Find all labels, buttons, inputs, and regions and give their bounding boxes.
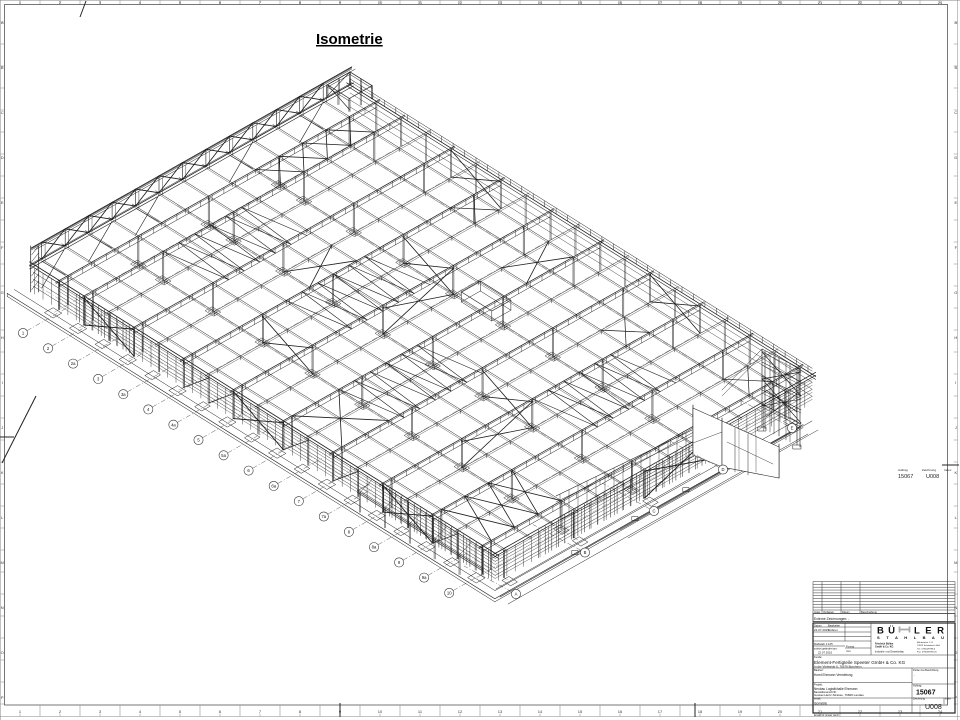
svg-text:18: 18 bbox=[698, 0, 703, 5]
svg-text:Bühlertalstr. 7+9: Bühlertalstr. 7+9 bbox=[917, 641, 934, 644]
svg-text:6a: 6a bbox=[271, 484, 276, 489]
svg-text:A: A bbox=[954, 20, 957, 25]
svg-text:Verfasser: Verfasser bbox=[823, 610, 834, 614]
svg-text:Format: Format bbox=[846, 645, 854, 649]
svg-text:4a: 4a bbox=[171, 422, 176, 427]
svg-text:12: 12 bbox=[458, 0, 463, 5]
svg-text:16: 16 bbox=[618, 0, 623, 5]
svg-text:Horst Ehrmann Vermietung: Horst Ehrmann Vermietung bbox=[814, 673, 853, 677]
svg-text:17: 17 bbox=[658, 709, 663, 714]
svg-text:Externe Zeichnungen: -: Externe Zeichnungen: - bbox=[814, 617, 849, 621]
svg-text:3a: 3a bbox=[121, 392, 126, 397]
svg-text:-: - bbox=[914, 673, 915, 677]
svg-text:14: 14 bbox=[538, 0, 543, 5]
svg-text:I: I bbox=[955, 380, 956, 385]
svg-text:B: B bbox=[1, 65, 4, 70]
svg-text:14: 14 bbox=[538, 709, 543, 714]
svg-text:U008: U008 bbox=[925, 704, 942, 711]
svg-text:15067: 15067 bbox=[898, 474, 913, 480]
svg-text:15067: 15067 bbox=[916, 690, 936, 697]
svg-text:20: 20 bbox=[778, 0, 783, 5]
svg-text:K: K bbox=[1, 470, 4, 475]
svg-text:Isometrie: Isometrie bbox=[316, 31, 383, 48]
svg-text:Index: Index bbox=[944, 468, 952, 472]
svg-text:D: D bbox=[1, 155, 4, 160]
svg-text:22: 22 bbox=[858, 0, 863, 5]
svg-text:U008: U008 bbox=[926, 474, 939, 480]
svg-text:C: C bbox=[652, 509, 655, 514]
svg-text:E: E bbox=[1, 200, 4, 205]
svg-text:20: 20 bbox=[778, 709, 783, 714]
svg-text:Auftrag: Auftrag bbox=[913, 684, 922, 688]
svg-text:S T A H L B A U: S T A H L B A U bbox=[877, 635, 944, 640]
svg-text:H: H bbox=[1, 335, 4, 340]
svg-text:A: A bbox=[515, 592, 518, 597]
svg-text:G: G bbox=[1, 290, 4, 295]
svg-text:Beschreibung: Beschreibung bbox=[861, 610, 877, 614]
svg-text:Kunde:: Kunde: bbox=[814, 655, 823, 659]
svg-text:8a: 8a bbox=[372, 545, 377, 550]
svg-text:18: 18 bbox=[698, 709, 703, 714]
svg-text:5a: 5a bbox=[221, 453, 226, 458]
svg-text:Inhalt:: Inhalt: bbox=[814, 697, 821, 701]
svg-text:Zeichnung: Zeichnung bbox=[922, 468, 936, 472]
svg-text:H: H bbox=[954, 335, 957, 340]
svg-text:J: J bbox=[1, 425, 3, 430]
svg-text:B: B bbox=[584, 550, 587, 555]
svg-text:21: 21 bbox=[818, 0, 823, 5]
svg-text:22.07.2015: 22.07.2015 bbox=[818, 651, 832, 655]
svg-text:13: 13 bbox=[498, 709, 503, 714]
svg-text:17: 17 bbox=[658, 0, 663, 5]
svg-text:Projekt:: Projekt: bbox=[814, 682, 823, 686]
svg-text:I: I bbox=[2, 380, 3, 385]
svg-text:C: C bbox=[954, 110, 957, 115]
svg-text:J: J bbox=[955, 425, 957, 430]
svg-text:Datum: Datum bbox=[814, 623, 822, 627]
svg-text:E: E bbox=[791, 426, 794, 431]
svg-text:10: 10 bbox=[447, 591, 452, 596]
svg-text:D: D bbox=[721, 467, 724, 472]
svg-text:15: 15 bbox=[578, 0, 583, 5]
svg-text:Partien bei Beschriftung: Partien bei Beschriftung bbox=[913, 669, 939, 672]
svg-text:B: B bbox=[954, 65, 957, 70]
svg-text:10: 10 bbox=[378, 0, 383, 5]
svg-text:M: M bbox=[954, 560, 957, 565]
svg-text:P: P bbox=[1, 695, 4, 700]
svg-text:16: 16 bbox=[618, 709, 623, 714]
svg-text:Hübner: Hübner bbox=[828, 628, 838, 632]
svg-text:13: 13 bbox=[498, 0, 503, 5]
svg-text:Isometrie: Isometrie bbox=[814, 702, 827, 706]
svg-text:G: G bbox=[954, 290, 957, 295]
svg-text:GmbH & Co. KG: GmbH & Co. KG bbox=[875, 646, 893, 649]
svg-text:12: 12 bbox=[458, 709, 463, 714]
svg-text:Tel.: 07904/9799-0: Tel.: 07904/9799-0 bbox=[917, 649, 936, 651]
svg-text:15: 15 bbox=[578, 709, 583, 714]
svg-text:2a: 2a bbox=[71, 361, 76, 366]
svg-text:Ersatz für: Ersatz durch:: Ersatz für: Ersatz durch: bbox=[814, 714, 840, 717]
svg-text:Index: Index bbox=[945, 698, 952, 701]
svg-text:Zeichnung: Zeichnung bbox=[913, 697, 926, 701]
svg-text:10: 10 bbox=[378, 709, 383, 714]
svg-text:24: 24 bbox=[938, 0, 943, 5]
svg-text:Maßstab 1:125: Maßstab 1:125 bbox=[814, 642, 833, 646]
svg-text:9a: 9a bbox=[422, 575, 427, 580]
svg-text:Industrie- und Gewerbebau: Industrie- und Gewerbebau bbox=[875, 651, 905, 654]
svg-text:Gustav-Hertz-Strasse, 76829 L: Gustav-Hertz-Strasse, 76829 Landau bbox=[814, 693, 864, 697]
svg-text:Auftrag: Auftrag bbox=[898, 468, 908, 472]
svg-text:M: M bbox=[1, 560, 4, 565]
svg-text:Index: Index bbox=[814, 610, 821, 614]
svg-text:A: A bbox=[1, 20, 4, 25]
svg-text:O: O bbox=[1, 650, 4, 655]
svg-text:Datum: Datum bbox=[842, 610, 850, 614]
svg-text:K: K bbox=[954, 470, 957, 475]
svg-text:23: 23 bbox=[898, 0, 903, 5]
svg-text:74523 Schwäbisch Hall: 74523 Schwäbisch Hall bbox=[917, 645, 940, 647]
svg-text:7a: 7a bbox=[321, 514, 326, 519]
svg-text:19: 19 bbox=[738, 709, 743, 714]
svg-text:D: D bbox=[954, 155, 957, 160]
svg-text:N: N bbox=[1, 605, 4, 610]
svg-text:Fax: 07904/9799-20: Fax: 07904/9799-20 bbox=[917, 651, 937, 653]
svg-text:Bearbeiter: Bearbeiter bbox=[828, 623, 840, 627]
svg-text:E: E bbox=[954, 200, 957, 205]
svg-text:Bauherr:: Bauherr: bbox=[814, 668, 824, 672]
svg-text:19: 19 bbox=[738, 0, 743, 5]
svg-text:C: C bbox=[1, 110, 4, 115]
svg-text:mm: mm bbox=[846, 649, 851, 653]
